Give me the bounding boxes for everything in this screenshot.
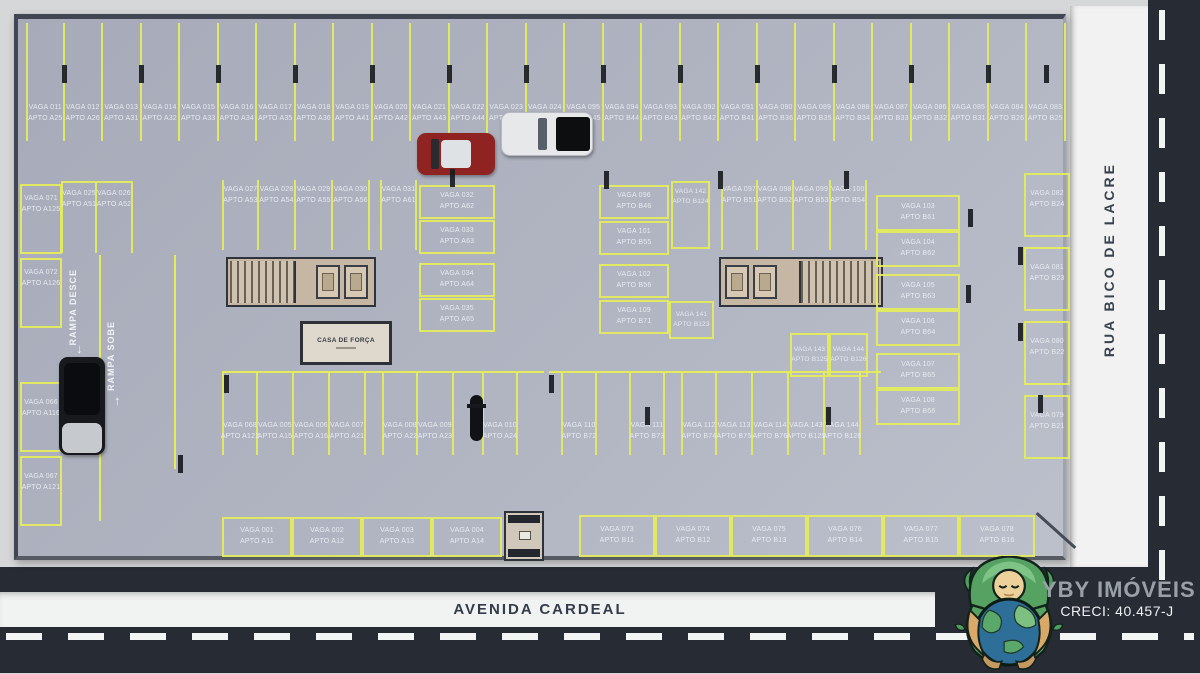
stall-apto-label: APTO A24	[483, 432, 518, 443]
stall-vaga-label: VAGA 077	[904, 525, 938, 536]
stall-vaga-label: VAGA 034	[440, 269, 474, 280]
stall-vaga-label: VAGA 015	[181, 103, 215, 114]
stall-apto-label: APTO A62	[440, 202, 475, 213]
elevator-icon	[316, 265, 340, 299]
stall-apto-label: APTO A12	[310, 537, 345, 548]
stall-apto-label: APTO B66	[901, 407, 936, 418]
stall-narrow-mid: VAGA 141APTO B123	[669, 301, 714, 339]
stall-apto-label: APTO B55	[617, 238, 652, 249]
parking-stall: VAGA 085APTO B31	[950, 23, 989, 141]
stall-vaga-label: VAGA 067	[24, 472, 58, 483]
parking-stall: VAGA 066APTO A116	[20, 382, 62, 452]
parking-stall: VAGA 082APTO B24	[1024, 173, 1070, 237]
structural-column	[601, 65, 606, 83]
stall-vaga-label: VAGA 032	[440, 191, 474, 202]
stall-vaga-label: VAGA 022	[451, 103, 485, 114]
stall-vaga-label: VAGA 090	[759, 103, 793, 114]
stall-vaga-label: VAGA 087	[874, 103, 908, 114]
stall-apto-label: APTO A41	[335, 114, 370, 125]
parking-stall: VAGA 012APTO A26	[65, 23, 104, 141]
stall-apto-label: APTO A25	[28, 114, 63, 125]
stall-vaga-label: VAGA 080	[1030, 337, 1064, 348]
stall-vaga-label: VAGA 003	[380, 526, 414, 537]
stair-elevator-core-left	[226, 257, 376, 307]
ramp-up-label: RAMPA SOBE	[106, 321, 116, 391]
parking-stall: VAGA 002APTO A12	[292, 517, 362, 557]
structural-column	[370, 65, 375, 83]
garage-floor-plan: VAGA 011APTO A25VAGA 012APTO A26VAGA 013…	[14, 14, 1066, 560]
stall-vaga-label: VAGA 092	[682, 103, 716, 114]
stall-column-left-bottom: VAGA 066APTO A116VAGA 067APTO A121	[20, 382, 62, 530]
stall-vaga-label: VAGA 008	[383, 421, 417, 432]
road-center-line-right	[1159, 10, 1165, 590]
stall-apto-label: APTO B12	[676, 536, 711, 547]
parking-stall: VAGA 092APTO B42	[681, 23, 720, 141]
stall-vaga-label: VAGA 098	[758, 185, 792, 196]
parking-stall: VAGA 089APTO B35	[796, 23, 835, 141]
stall-apto-label: APTO A64	[440, 280, 475, 291]
parking-stall: VAGA 033APTO A63	[419, 220, 495, 254]
stall-vaga-label: VAGA 013	[104, 103, 138, 114]
power-house-label: CASA DE FORÇA	[317, 337, 375, 344]
stall-apto-label: APTO B41	[720, 114, 755, 125]
parking-stall: VAGA 030APTO A56	[333, 180, 370, 250]
stall-apto-label: APTO B54	[830, 196, 865, 207]
parking-stall: VAGA 034APTO A64	[419, 263, 495, 297]
parking-stall: VAGA 103APTO B61	[876, 195, 960, 231]
stall-row-2: VAGA 027APTO A53VAGA 028APTO A54VAGA 029…	[222, 180, 417, 250]
structural-column	[986, 65, 991, 83]
stall-apto-label: APTO A22	[383, 432, 418, 443]
stall-apto-label: APTO B15	[904, 536, 939, 547]
structural-column	[718, 171, 723, 189]
street-right-label: RUA BICO DE LACRE	[1101, 162, 1117, 357]
stall-apto-label: APTO B31	[951, 114, 986, 125]
parking-stall: VAGA 091APTO B41	[719, 23, 758, 141]
parking-stall: VAGA 101APTO B55	[599, 221, 669, 255]
elevator-icon	[725, 265, 749, 299]
stall-row-bottom-left: VAGA 001APTO A11VAGA 002APTO A12VAGA 003…	[222, 517, 502, 557]
structural-column	[826, 407, 831, 425]
parking-stall: VAGA 114APTO B76	[753, 373, 789, 455]
stall-vaga-label: VAGA 014	[143, 103, 177, 114]
stall-apto-label: APTO A14	[450, 537, 485, 548]
stall-apto-label: APTO B62	[901, 249, 936, 260]
parking-stall: VAGA 010APTO A24	[482, 373, 518, 455]
stall-apto-label: APTO B75	[717, 432, 752, 443]
stall-vaga-label: VAGA 109	[617, 306, 651, 317]
stall-vaga-label: VAGA 066	[24, 398, 58, 409]
parking-stall: VAGA 141APTO B123	[669, 301, 714, 339]
street-name-right: RUA BICO DE LACRE	[1070, 110, 1148, 410]
parking-stall: VAGA 080APTO B22	[1024, 321, 1070, 385]
stall-vaga-label: VAGA 104	[901, 238, 935, 249]
stall-column-right: VAGA 082APTO B24VAGA 081APTO B23VAGA 080…	[1024, 173, 1070, 469]
parking-stall: VAGA 008APTO A22	[382, 373, 418, 455]
stall-vaga-label: VAGA 101	[617, 227, 651, 238]
stall-apto-label: APTO B22	[1030, 348, 1065, 359]
stall-pair-25-26: VAGA 025APTO A51VAGA 026APTO A52	[61, 181, 133, 253]
ramp-down-arrow: ↓	[76, 341, 83, 356]
stall-vaga-label: VAGA 073	[600, 525, 634, 536]
stall-apto-label: APTO B11	[600, 536, 634, 547]
stall-apto-label: APTO B72	[562, 432, 597, 443]
stall-vaga-label: VAGA 086	[913, 103, 947, 114]
structural-column	[968, 209, 973, 227]
stall-apto-label: APTO B42	[681, 114, 716, 125]
stall-vaga-label: VAGA 007	[330, 421, 364, 432]
parking-stall: VAGA 077APTO B15	[883, 515, 959, 557]
parking-stall: VAGA 110APTO B72	[561, 373, 597, 455]
stall-vaga-label: VAGA 083	[1028, 103, 1062, 114]
parking-stall: VAGA 026APTO A52	[97, 181, 133, 253]
parking-stall: VAGA 013APTO A31	[103, 23, 142, 141]
stall-apto-label: APTO B23	[1030, 274, 1065, 285]
stall-apto-label: APTO A16	[294, 432, 329, 443]
stall-vaga-label: VAGA 107	[901, 360, 935, 371]
stall-apto-label: APTO A35	[258, 114, 293, 125]
structural-column	[1018, 247, 1023, 265]
stall-vaga-label: VAGA 002	[310, 526, 344, 537]
stall-vaga-label: VAGA 091	[720, 103, 754, 114]
parking-stall: VAGA 079APTO B21	[1024, 395, 1070, 459]
stall-vaga-label: VAGA 026	[97, 189, 131, 200]
parking-stall: VAGA 021APTO A43	[411, 23, 450, 141]
stall-stack-a: VAGA 032APTO A62VAGA 033APTO A63VAGA 034…	[419, 185, 495, 333]
ramp-down-label: RAMPA DESCE	[68, 269, 78, 346]
stall-vaga-label: VAGA 103	[901, 202, 935, 213]
stall-apto-label: APTO B33	[874, 114, 909, 125]
stall-apto-label: APTO B24	[1030, 200, 1065, 211]
stall-apto-label: APTO A32	[142, 114, 177, 125]
stall-vaga-label: VAGA 009	[418, 421, 452, 432]
parking-stall: VAGA 106APTO B64	[876, 310, 960, 346]
stall-apto-label: APTO B43	[643, 114, 678, 125]
stall-apto-label: APTO A125	[22, 205, 61, 216]
parking-stall: VAGA 112APTO B74	[681, 373, 717, 455]
stall-vaga-label: VAGA 027	[224, 185, 258, 196]
stall-pair-c: VAGA 143APTO B125VAGA 144APTO B126	[790, 333, 868, 377]
stall-apto-label: APTO A65	[440, 315, 475, 326]
stall-vaga-label: VAGA 088	[836, 103, 870, 114]
structural-column	[450, 169, 455, 187]
stall-apto-label: APTO A31	[104, 114, 139, 125]
motorcycle	[470, 395, 483, 441]
stall-apto-label: APTO A54	[259, 196, 294, 207]
stall-apto-label: APTO A21	[330, 432, 365, 443]
parking-stall: VAGA 011APTO A25	[26, 23, 65, 141]
road-right	[1148, 0, 1200, 575]
structural-column	[966, 285, 971, 303]
stall-apto-label: APTO A23	[418, 432, 453, 443]
parking-stall: VAGA 088APTO B34	[835, 23, 874, 141]
structural-column	[216, 65, 221, 83]
stall-row-3-left: VAGA 068APTO A122VAGA 005APTO A15VAGA 00…	[222, 371, 544, 455]
parking-stall: VAGA 022APTO A44	[450, 23, 489, 141]
power-house: CASA DE FORÇA	[300, 321, 392, 365]
stall-apto-label: APTO B46	[617, 202, 652, 213]
stall-vaga-label: VAGA 019	[335, 103, 369, 114]
parking-stall: VAGA 105APTO B63	[876, 274, 960, 310]
stall-apto-label: APTO B63	[901, 292, 936, 303]
parking-stall: VAGA 016APTO A34	[219, 23, 258, 141]
red-car	[417, 133, 495, 175]
stall-apto-label: APTO B13	[752, 536, 787, 547]
stall-vaga-label: VAGA 082	[1030, 189, 1064, 200]
stall-vaga-label: VAGA 011	[29, 103, 62, 114]
stall-vaga-label: VAGA 075	[752, 525, 786, 536]
stall-apto-label: APTO B51	[722, 196, 757, 207]
structural-column	[604, 171, 609, 189]
stall-vaga-label: VAGA 097	[722, 185, 756, 196]
parking-stall: VAGA 084APTO B26	[989, 23, 1028, 141]
stall-vaga-label: VAGA 005	[258, 421, 292, 432]
stall-vaga-label: VAGA 021	[412, 103, 446, 114]
stall-vaga-label: VAGA 076	[828, 525, 862, 536]
stall-apto-label: APTO A126	[22, 279, 61, 290]
parking-stall: VAGA 004APTO A14	[432, 517, 502, 557]
stall-vaga-label: VAGA 006	[294, 421, 328, 432]
stall-vaga-label: VAGA 094	[605, 103, 639, 114]
stall-apto-label: APTO B124	[672, 197, 708, 207]
stall-vaga-label: VAGA 105	[901, 281, 935, 292]
stall-vaga-label: VAGA 020	[374, 103, 408, 114]
stall-apto-label: APTO B71	[617, 317, 652, 328]
creci-number: CRECI: 40.457-J	[1042, 603, 1192, 619]
stall-stack-b: VAGA 096APTO B46VAGA 101APTO B55VAGA 102…	[599, 185, 669, 336]
structural-column	[293, 65, 298, 83]
stall-vaga-label: VAGA 068	[223, 421, 257, 432]
parking-stall: VAGA 027APTO A53	[222, 180, 259, 250]
stairs-icon	[230, 261, 296, 303]
stall-vaga-label: VAGA 144	[833, 345, 864, 355]
stall-apto-label: APTO B123	[673, 320, 709, 330]
stall-vaga-label: VAGA 099	[794, 185, 828, 196]
stall-vaga-label: VAGA 085	[951, 103, 985, 114]
stall-apto-label: APTO A43	[412, 114, 447, 125]
white-pickup-truck	[501, 112, 593, 156]
parking-stall: VAGA 014APTO A32	[142, 23, 181, 141]
parking-stall: VAGA 081APTO B23	[1024, 247, 1070, 311]
parking-stall: VAGA 009APTO A23	[418, 373, 454, 455]
parking-stall: VAGA 107APTO B65	[876, 353, 960, 389]
stall-apto-label: APTO B126	[822, 432, 861, 443]
stall-apto-label: APTO B74	[682, 432, 717, 443]
stall-apto-label: APTO B35	[797, 114, 832, 125]
stall-apto-label: APTO B25	[1028, 114, 1063, 125]
parking-stall: VAGA 031APTO A61	[380, 180, 417, 250]
stall-vaga-label: VAGA 084	[990, 103, 1024, 114]
stall-apto-label: APTO B64	[901, 328, 936, 339]
parking-stall: VAGA 087APTO B33	[873, 23, 912, 141]
stall-vaga-label: VAGA 017	[258, 103, 292, 114]
structural-column	[1018, 323, 1023, 341]
stall-apto-label: APTO B65	[901, 371, 936, 382]
parking-stall: VAGA 032APTO A62	[419, 185, 495, 219]
stall-apto-label: APTO A55	[296, 196, 331, 207]
stall-apto-label: APTO A33	[181, 114, 216, 125]
parking-stall: VAGA 093APTO B43	[642, 23, 681, 141]
stall-apto-label: APTO A42	[373, 114, 408, 125]
street-name-bottom: AVENIDA CARDEAL	[340, 601, 740, 618]
stall-narrow-top: VAGA 142APTO B124	[671, 181, 710, 249]
stall-apto-label: APTO B52	[757, 196, 792, 207]
stall-apto-label: APTO A53	[223, 196, 258, 207]
stall-apto-label: APTO A63	[440, 237, 475, 248]
structural-column	[645, 407, 650, 425]
structural-column	[678, 65, 683, 83]
structural-column	[62, 65, 67, 83]
stall-vaga-label: VAGA 093	[643, 103, 677, 114]
ramp-lane-line	[174, 255, 176, 469]
stall-apto-label: APTO B125	[791, 355, 827, 365]
parking-stall: VAGA 109APTO B71	[599, 300, 669, 334]
stall-apto-label: APTO A122	[221, 432, 260, 443]
stall-vaga-label: VAGA 078	[980, 525, 1014, 536]
parking-stall: VAGA 020APTO A42	[373, 23, 412, 141]
stall-vaga-label: VAGA 001	[240, 526, 274, 537]
elevator-icon	[753, 265, 777, 299]
stall-apto-label: APTO B44	[604, 114, 639, 125]
structural-column	[909, 65, 914, 83]
parking-stall: VAGA 142APTO B124	[671, 181, 710, 249]
stall-apto-label: APTO B76	[753, 432, 788, 443]
stall-apto-label: APTO A11	[240, 537, 274, 548]
parking-stall: VAGA 029APTO A55	[296, 180, 333, 250]
parking-stall: VAGA 143APTO B125	[789, 373, 825, 455]
parking-stall: VAGA 074APTO B12	[655, 515, 731, 557]
parking-stall: VAGA 035APTO A65	[419, 298, 495, 332]
parking-stall: VAGA 098APTO B52	[758, 180, 795, 250]
parking-stall: VAGA 113APTO B75	[717, 373, 753, 455]
stall-apto-label: APTO A61	[381, 196, 416, 207]
parking-stall: VAGA 019APTO A41	[334, 23, 373, 141]
stall-apto-label: APTO A52	[97, 200, 132, 211]
parking-stall: VAGA 076APTO B14	[807, 515, 883, 557]
parking-stall: VAGA 094APTO B44	[604, 23, 643, 141]
parking-stall: VAGA 071APTO A125	[20, 184, 62, 254]
parking-stall: VAGA 104APTO B62	[876, 231, 960, 267]
structural-column	[447, 65, 452, 83]
stall-vaga-label: VAGA 143	[789, 421, 823, 432]
parking-stall: VAGA 018APTO A36	[296, 23, 335, 141]
stall-vaga-label: VAGA 072	[24, 268, 58, 279]
stall-apto-label: APTO B56	[617, 281, 652, 292]
stall-apto-label: APTO B21	[1030, 422, 1065, 433]
stall-vaga-label: VAGA 025	[62, 189, 96, 200]
parking-stall: VAGA 015APTO A33	[180, 23, 219, 141]
parking-stall: VAGA 017APTO A35	[257, 23, 296, 141]
stall-apto-label: APTO B32	[912, 114, 947, 125]
stall-apto-label: APTO A44	[450, 114, 485, 125]
stall-vaga-label: VAGA 096	[617, 191, 651, 202]
stall-vaga-label: VAGA 112	[682, 421, 715, 432]
parking-stall: VAGA 100APTO B54	[831, 180, 868, 250]
parking-stall: VAGA 090APTO B36	[758, 23, 797, 141]
stall-vaga-label: VAGA 079	[1030, 411, 1064, 422]
structural-column	[549, 375, 554, 393]
structural-column	[1038, 395, 1043, 413]
structural-column	[524, 65, 529, 83]
parking-stall: VAGA 073APTO B11	[579, 515, 655, 557]
stall-apto-label: APTO B16	[980, 536, 1015, 547]
stall-vaga-label: VAGA 110	[562, 421, 595, 432]
stall-apto-label: APTO B125	[786, 432, 825, 443]
ramp-up-arrow: ↑	[114, 393, 121, 408]
stall-row-bottom-right: VAGA 073APTO B11VAGA 074APTO B12VAGA 075…	[579, 515, 1035, 557]
stall-vaga-label: VAGA 030	[334, 185, 368, 196]
stall-apto-label: APTO B14	[828, 536, 863, 547]
parking-stall: VAGA 067APTO A121	[20, 456, 62, 526]
stall-vaga-label: VAGA 010	[483, 421, 517, 432]
parking-stall: VAGA 025APTO A51	[61, 181, 97, 253]
stall-vaga-label: VAGA 114	[753, 421, 786, 432]
stall-apto-label: APTO A51	[62, 200, 97, 211]
stall-vaga-label: VAGA 081	[1030, 263, 1064, 274]
stall-apto-label: APTO A34	[219, 114, 254, 125]
stall-apto-label: APTO A26	[65, 114, 100, 125]
stall-vaga-label: VAGA 035	[440, 304, 474, 315]
parking-stall: VAGA 144APTO B126	[829, 333, 868, 377]
structural-column	[832, 65, 837, 83]
structural-column	[1044, 65, 1049, 83]
stall-vaga-label: VAGA 102	[617, 270, 651, 281]
structural-column	[844, 171, 849, 189]
parking-stall: VAGA 028APTO A54	[259, 180, 296, 250]
parking-stall: VAGA 143APTO B125	[790, 333, 829, 377]
structural-column	[224, 375, 229, 393]
parking-stall: VAGA 005APTO A15	[258, 373, 294, 455]
stall-vaga-label: VAGA 113	[717, 421, 750, 432]
parking-stall: VAGA 006APTO A16	[294, 373, 330, 455]
stall-apto-label: APTO B36	[758, 114, 793, 125]
stall-vaga-label: VAGA 004	[450, 526, 484, 537]
stall-apto-label: APTO A15	[258, 432, 293, 443]
stall-stack-c: VAGA 103APTO B61VAGA 104APTO B62VAGA 105…	[876, 195, 960, 425]
elevator-icon	[344, 265, 368, 299]
parking-stall: VAGA 001APTO A11	[222, 517, 292, 557]
stall-vaga-label: VAGA 033	[440, 226, 474, 237]
stall-vaga-label: VAGA 074	[676, 525, 710, 536]
stall-vaga-label: VAGA 089	[797, 103, 831, 114]
structural-column	[755, 65, 760, 83]
dark-car	[59, 357, 105, 455]
parking-stall: VAGA 075APTO B13	[731, 515, 807, 557]
stall-apto-label: APTO B73	[630, 432, 665, 443]
stall-vaga-label: VAGA 142	[675, 187, 706, 197]
parking-stall: VAGA 102APTO B56	[599, 264, 669, 298]
stall-apto-label: APTO B26	[989, 114, 1024, 125]
stall-vaga-label: VAGA 031	[382, 185, 416, 196]
parking-stall: VAGA 096APTO B46	[599, 185, 669, 219]
stall-vaga-label: VAGA 143	[794, 345, 825, 355]
stall-vaga-label: VAGA 016	[220, 103, 254, 114]
parking-stall: VAGA 108APTO B66	[876, 389, 960, 425]
guard-booth	[504, 511, 544, 561]
parking-stall: VAGA 003APTO A13	[362, 517, 432, 557]
stall-apto-label: APTO A36	[296, 114, 331, 125]
stall-apto-label: APTO B61	[901, 213, 936, 224]
stair-elevator-core-right	[719, 257, 883, 307]
stall-apto-label: APTO A116	[22, 409, 60, 420]
structural-column	[139, 65, 144, 83]
stall-row-4: VAGA 097APTO B51VAGA 098APTO B52VAGA 099…	[721, 180, 867, 250]
stall-apto-label: APTO B53	[794, 196, 829, 207]
stall-apto-label: APTO B126	[830, 355, 866, 365]
stall-apto-label: APTO A121	[22, 483, 61, 494]
stall-column-left-top: VAGA 071APTO A125VAGA 072APTO A126	[20, 184, 62, 332]
structural-column	[178, 455, 183, 473]
